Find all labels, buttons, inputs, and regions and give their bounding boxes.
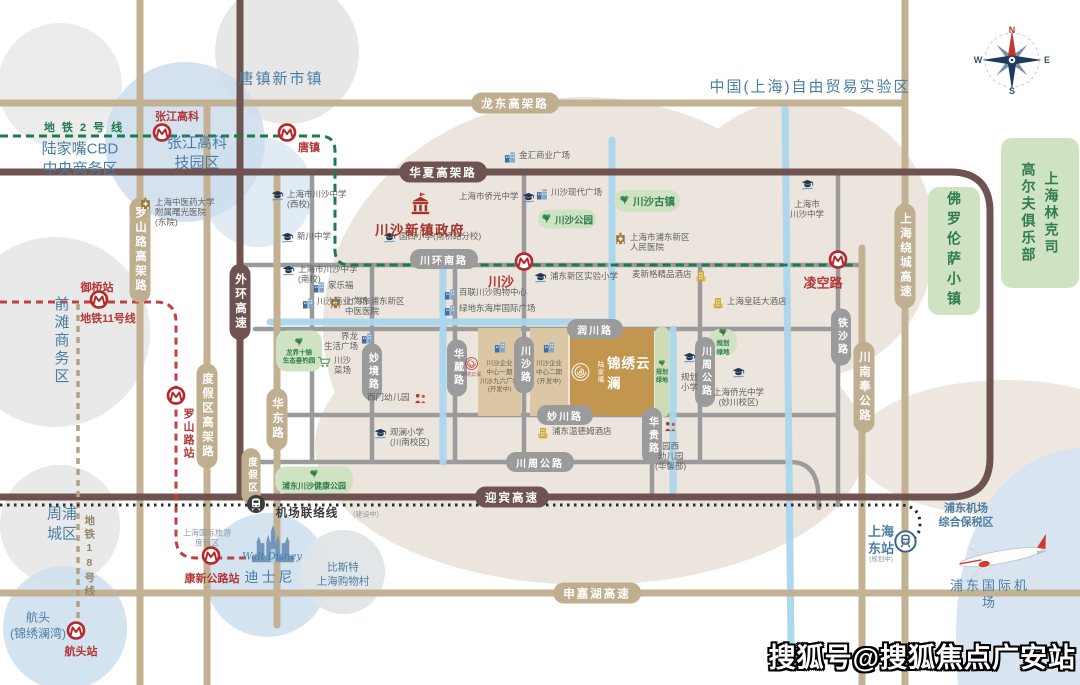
metro-station-label: 张江高科 [155, 108, 199, 124]
hospital-icon [139, 197, 152, 215]
poi-label: 上海市侨光中学 [459, 191, 519, 201]
poi-school: 规划小学 [681, 351, 698, 392]
disney-script-label: Walt Disney [242, 552, 302, 563]
metro-station-label: 唐镇 [298, 139, 320, 155]
project-name: 锦绣云澜 [607, 352, 654, 392]
metro-station [278, 123, 297, 147]
school-icon [522, 191, 535, 209]
mall-icon [536, 187, 548, 205]
project-emblem: 锦绣云澜 [461, 356, 481, 378]
metro-logo-icon [202, 546, 221, 565]
hotel-icon [537, 426, 549, 444]
poi-rail [894, 530, 917, 558]
region-label: 浦东国际机场 [945, 578, 1035, 612]
poi-label: 规划小学 [681, 372, 698, 392]
office-building-icon [543, 340, 555, 358]
park-label: 规划 [656, 370, 668, 378]
region-label: 周浦 城区 [47, 505, 77, 544]
metro-station-label: 御桥站 [81, 279, 114, 295]
poi-market: 川沙菜场 [317, 355, 351, 375]
metro-station-label: 康新公路站 [185, 570, 240, 586]
metro-station [153, 123, 172, 147]
region-label: 地铁18号线 [84, 515, 95, 599]
poi-kind: 西门幼儿园 [367, 392, 428, 410]
train-icon [246, 494, 266, 519]
metro-station-label: 川沙 [488, 272, 514, 291]
tree-icon [658, 359, 666, 371]
road-label: 川沙路 [514, 337, 534, 394]
region-label: 比斯特 上海购物村 [317, 561, 370, 588]
region-label: (规划中) [869, 556, 893, 564]
park-label: 佛罗伦萨小镇 [944, 191, 964, 311]
region-label: 地 铁 2 号 线 [44, 121, 124, 135]
park-label: 上海林克司 [1042, 171, 1062, 256]
metro-logo-icon [278, 123, 297, 142]
school-icon [282, 264, 295, 282]
poi-label: 金汇商业广场 [519, 150, 570, 160]
poi-mall: 川沙现代广场 [536, 187, 602, 205]
region-label: 迪士尼 [245, 568, 296, 586]
park-label: 高尔夫俱乐部 [1019, 162, 1039, 264]
metro-logo-icon [167, 386, 186, 405]
park-area: 川沙公园 [538, 210, 596, 229]
park-label: 浦东川沙健康公园 [282, 482, 346, 492]
tree-icon [541, 212, 552, 226]
poi-label: 上海中医药大学附属曙光医院(东院) [155, 197, 215, 228]
poi-label: 川沙现代广场 [551, 187, 602, 197]
region-label: 前滩商务区 [54, 296, 69, 386]
school-icon [281, 231, 294, 249]
poi-label: 川沙商业广场 [317, 296, 368, 306]
poi-train [246, 494, 266, 519]
development-block: 川沙企业中心二期(开发中) [530, 328, 568, 416]
mall-icon [504, 150, 516, 168]
poi-hotel: 上海皇廷大酒店 [712, 296, 787, 314]
tree-icon [309, 469, 319, 482]
road-label: 华夏高架路 [399, 162, 487, 183]
poi-label: 上海市浦东新区人民医院 [630, 232, 690, 252]
development-block-label: 中心二期 [536, 369, 562, 378]
compass-east-label: E [1044, 55, 1050, 65]
poi-school: 上海市侨光中学 [459, 191, 535, 209]
market-icon [317, 355, 331, 373]
project-block: 陆家嘴 锦绣云澜 [570, 328, 654, 416]
metro-station [67, 621, 86, 645]
school-icon [683, 351, 696, 369]
airplane-icon [945, 532, 1057, 580]
poi-label: 上海皇廷大酒店 [727, 296, 787, 306]
road-label: 妙川路 [537, 405, 593, 425]
kind-icon [663, 420, 678, 438]
park-label: 绿地 [656, 378, 668, 386]
poi-label: 新川中学 [297, 231, 331, 241]
metro-logo-icon [153, 123, 172, 142]
poi-school: 上海市川沙中学 [790, 178, 824, 219]
project-logo-icon [570, 359, 591, 385]
road-label: 龙东高架路 [471, 93, 559, 114]
tree-icon [294, 336, 304, 349]
mall-icon [361, 331, 373, 349]
road-label: 度假区高架路 [197, 364, 218, 469]
poi-label: 浦东温德姆酒店 [552, 426, 612, 436]
mall-icon [302, 296, 314, 314]
park-area: 龙界十锦生态垂钓园 [276, 331, 322, 372]
development-block-label: 中心一期 [487, 369, 513, 378]
road-label: 申嘉湖高速 [553, 583, 641, 604]
rail-icon [894, 530, 917, 558]
poi-kind: 园西幼儿园(华馨部) [655, 420, 686, 472]
office-building-icon [494, 340, 506, 358]
hospital-icon [614, 232, 627, 250]
metro-logo-icon [67, 621, 86, 640]
poi-label: 上海市川沙中学 [790, 199, 824, 219]
hotel-icon [712, 296, 724, 314]
poi-label: 观澜小学(川南校区) [390, 427, 430, 447]
poi-label: 麦新格精品酒店 [632, 269, 692, 279]
school-icon [801, 178, 814, 196]
development-block-label: 川沙企业 [536, 360, 562, 369]
poi-hospital: 上海市浦东新区人民医院 [614, 232, 690, 252]
region-label: 上海 东站 [868, 524, 894, 558]
park-label: 绿地 [717, 349, 730, 357]
poi-label: 西门幼儿园 [367, 392, 410, 402]
metro-station [829, 250, 848, 274]
poi-mall: 川沙商业广场 [302, 296, 368, 314]
metro-station-label: 罗山路站 [180, 408, 196, 460]
poi-school: 新川中学 [281, 231, 331, 249]
kind-icon [413, 392, 428, 410]
poi-label: 上海侨光中学(妙川校区) [713, 387, 764, 407]
poi-mall: 界龙生活广场 [324, 331, 373, 351]
road-label: 润川路 [567, 319, 623, 339]
poi-gov: 川沙新镇政府 [375, 192, 465, 239]
metro-station [167, 386, 186, 410]
poi-label: 家乐福 [328, 280, 354, 290]
poi-hospital: 上海中医药大学附属曙光医院(东院) [139, 197, 215, 228]
park-label: 规划 [717, 340, 730, 348]
tree-icon [718, 327, 728, 340]
region-label: 陆家嘴CBD 中央商务区 [42, 140, 119, 179]
road-label: 川周公路 [506, 452, 574, 472]
road-label: 铁沙路 [831, 309, 851, 366]
road-label: 川南奉公路 [854, 342, 875, 433]
region-label: 张江高科 技园区 [167, 134, 227, 173]
park-label: 川沙公园 [555, 212, 593, 226]
poi-label: 绿地东海岸国际广场 [459, 303, 536, 313]
map-canvas: 川沙公园川沙古镇规划绿地规划绿地浦东川沙健康公园龙界十锦生态垂钓园佛罗伦萨小镇上… [0, 0, 1080, 685]
metro-logo-icon [515, 252, 534, 271]
school-icon [271, 189, 284, 207]
development-block-label: 川沙企业 [487, 360, 513, 369]
tree-icon [619, 194, 630, 208]
school-icon [374, 427, 387, 445]
road-label: 川环南路 [410, 249, 478, 269]
gov-icon [408, 192, 433, 220]
poi-school: 上海市川沙中学(西校) [271, 189, 347, 209]
poi-label: 川沙新镇政府 [375, 223, 465, 239]
metro-logo-icon [829, 250, 848, 269]
road-label: 外环高速 [230, 264, 251, 340]
region-label: 机场联络线 [276, 507, 339, 522]
poi-label: 浦东新区实验小学 [550, 271, 618, 281]
park-area: 上海林克司高尔夫俱乐部 [1001, 138, 1079, 288]
poi-label: 上海市川沙中学(西校) [287, 189, 347, 209]
region-label: 航头 (锦绣澜湾) [10, 610, 66, 641]
region-label: (建设中) [353, 510, 379, 519]
poi-label: 园西幼儿园(华馨部) [655, 441, 686, 472]
poi-hotel: 浦东温德姆酒店 [537, 426, 612, 444]
development-block-label: (开发中) [488, 386, 512, 395]
hotel-icon [695, 269, 707, 287]
mall-icon [444, 303, 456, 321]
poi-mall: 绿地东海岸国际广场 [444, 303, 536, 321]
metro-station-label: 航头站 [65, 643, 98, 659]
park-area: 规划绿地 [655, 327, 669, 417]
school-icon [732, 366, 745, 384]
watermark: 搜狐号@搜狐焦点广安站 [769, 636, 1076, 675]
poi-school: 浦东新区实验小学 [534, 271, 618, 289]
park-area: 佛罗伦萨小镇 [928, 187, 980, 315]
project-emblem-label: 锦绣云澜 [461, 371, 481, 378]
poi-hotel: 麦新格精品酒店 [632, 269, 707, 287]
region-label: 浦东机场 综合保税区 [939, 502, 994, 531]
compass-north-label: N [1009, 25, 1016, 35]
project-brand: 陆家嘴 [594, 361, 604, 384]
poi-label: 川沙菜场 [334, 355, 351, 375]
road-label: 迎宾高速 [475, 487, 549, 508]
development-block-label: (开发中) [537, 378, 561, 387]
poi-label: 界龙生活广场 [324, 331, 358, 351]
metro-station [202, 546, 221, 570]
park-area: 川沙古镇 [614, 190, 680, 212]
metro-station [515, 252, 534, 276]
park-label: 龙界十锦 [286, 349, 312, 357]
poi-school: 上海侨光中学(妙川校区) [713, 366, 764, 407]
school-icon [534, 271, 547, 289]
compass-south-label: S [1009, 86, 1015, 96]
park-area: 浦东川沙健康公园 [275, 467, 353, 494]
park-label: 生态垂钓园 [283, 358, 316, 366]
road-label: 上海绕城高速 [895, 204, 916, 309]
metro-station-label: 凌空路 [803, 273, 842, 292]
region-label: 中国(上海)自由贸易实验区 [710, 77, 911, 97]
labels-layer: 川沙公园川沙古镇规划绿地规划绿地浦东川沙健康公园龙界十锦生态垂钓园佛罗伦萨小镇上… [0, 0, 1080, 685]
compass-west-label: W [974, 55, 983, 65]
park-label: 川沙古镇 [633, 194, 675, 209]
project-emblem-icon [463, 356, 478, 371]
poi-mall: 金汇商业广场 [504, 150, 570, 168]
road-label: 华东路 [267, 388, 288, 450]
poi-school: 观澜小学(川南校区) [374, 427, 430, 447]
region-label: 唐镇新市镇 [238, 69, 323, 89]
